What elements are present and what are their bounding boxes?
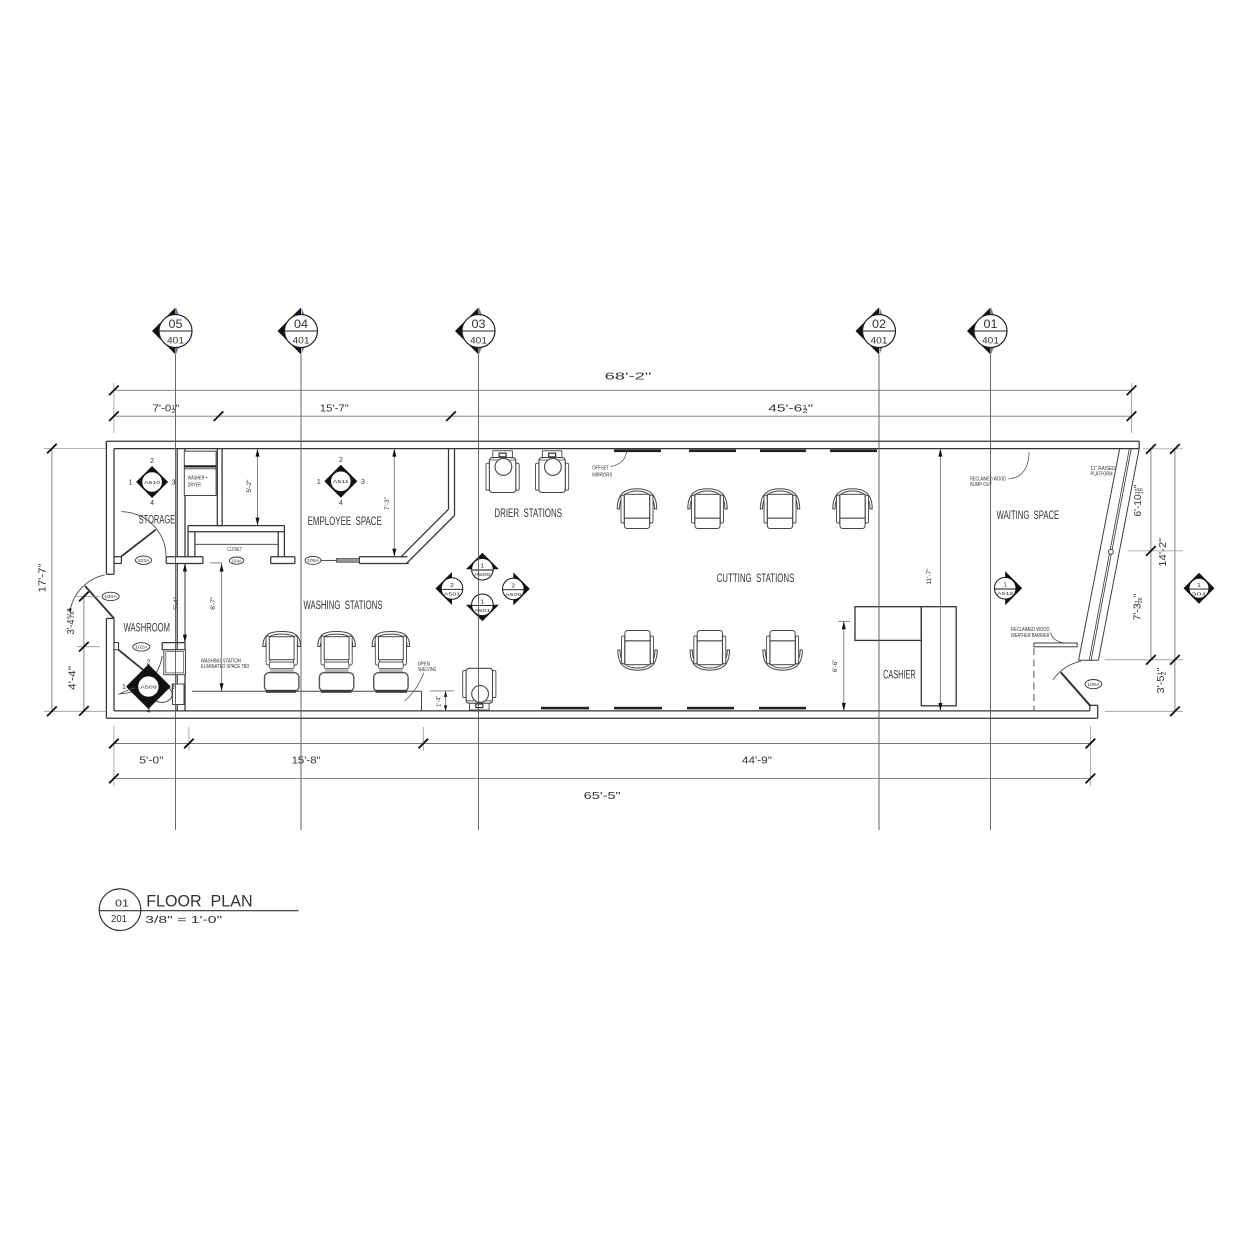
svg-text:109A: 109A [307,558,320,563]
svg-text:14'-2": 14'-2" [1158,537,1169,567]
svg-text:A511: A511 [333,479,349,485]
svg-text:1: 1 [317,479,321,486]
svg-text:3/8" = 1'-0": 3/8" = 1'-0" [145,914,222,926]
svg-text:5'-2": 5'-2" [246,479,253,493]
svg-text:02: 02 [872,317,886,331]
svg-text:7'-3116": 7'-3116" [1133,593,1145,620]
svg-text:A501: A501 [474,608,491,613]
svg-text:3: 3 [171,684,175,691]
svg-text:5'-4": 5'-4" [173,596,180,610]
svg-text:15'-7": 15'-7" [320,402,349,414]
svg-text:3'-512": 3'-512" [1156,667,1168,693]
svg-text:03: 03 [472,317,486,331]
svg-text:4'-4": 4'-4" [68,665,79,690]
svg-text:3: 3 [172,480,176,487]
svg-text:106A: 106A [1087,682,1101,687]
svg-text:65'-5": 65'-5" [584,790,621,802]
svg-text:A500: A500 [474,572,491,577]
svg-text:A510: A510 [144,480,160,486]
svg-text:DRYER: DRYER [188,483,201,489]
svg-text:FLOOR PLAN: FLOOR PLAN [146,892,252,910]
svg-text:6'-101516": 6'-101516" [1133,484,1145,516]
svg-text:2: 2 [450,583,454,589]
svg-text:4: 4 [146,708,150,715]
svg-text:05: 05 [169,317,183,331]
svg-text:WEATHER BARRIER: WEATHER BARRIER [1011,633,1050,639]
svg-text:8'-7": 8'-7" [210,596,217,610]
svg-text:2: 2 [339,457,343,464]
svg-text:301: 301 [1192,591,1208,596]
svg-text:A500: A500 [505,592,522,597]
svg-text:WAITING SPACE: WAITING SPACE [997,510,1060,522]
svg-text:45'-612": 45'-612" [768,402,813,415]
svg-text:1: 1 [122,684,126,691]
svg-text:2: 2 [146,660,150,667]
svg-text:CLOSET: CLOSET [227,547,242,553]
svg-text:7'-012": 7'-012" [153,402,180,415]
svg-text:201: 201 [111,914,127,925]
svg-text:401: 401 [871,336,888,347]
svg-text:4: 4 [150,500,154,507]
svg-text:5'-0": 5'-0" [139,755,164,767]
svg-text:STORAGE: STORAGE [139,514,176,526]
svg-text:1: 1 [1197,583,1201,589]
svg-text:104A: 104A [231,558,243,563]
svg-text:A509: A509 [140,684,157,690]
svg-text:WASHING STATIONS: WASHING STATIONS [303,600,382,612]
svg-text:1: 1 [1003,583,1007,589]
svg-text:1: 1 [480,564,484,570]
svg-text:01: 01 [115,898,130,909]
svg-text:401: 401 [470,336,487,347]
svg-text:100A: 100A [104,594,118,599]
svg-text:102A: 102A [135,645,149,650]
svg-text:MIRRORS: MIRRORS [592,472,612,478]
svg-text:3: 3 [361,479,365,486]
svg-text:2: 2 [511,583,515,589]
svg-text:EMPLOYEE SPACE: EMPLOYEE SPACE [308,516,382,528]
svg-text:ELIMINATED SPACE TBD: ELIMINATED SPACE TBD [201,664,250,670]
svg-text:A512: A512 [997,591,1014,596]
svg-text:PLATFORM: PLATFORM [1091,471,1113,477]
svg-text:6'-6": 6'-6" [832,659,839,673]
svg-text:401: 401 [167,336,184,347]
svg-text:CUTTING STATIONS: CUTTING STATIONS [717,573,795,585]
svg-text:401: 401 [982,336,999,347]
svg-text:4: 4 [339,500,343,507]
svg-text:401: 401 [293,336,310,347]
svg-text:CASHIER: CASHIER [883,670,916,682]
svg-text:68'-2": 68'-2" [605,371,652,383]
svg-text:1: 1 [129,480,133,487]
svg-text:01: 01 [984,317,998,331]
svg-text:44'-9": 44'-9" [742,755,772,767]
svg-text:1: 1 [480,599,484,605]
svg-text:DRIER STATIONS: DRIER STATIONS [494,508,562,520]
svg-text:103A: 103A [138,558,151,563]
svg-text:7'-3": 7'-3" [384,496,391,510]
svg-text:15'-8": 15'-8" [292,755,321,767]
svg-text:3'-4⅝": 3'-4⅝" [66,608,77,634]
svg-text:BUMP-OUT: BUMP-OUT [970,482,993,488]
svg-text:WASHER +: WASHER + [188,476,208,482]
svg-text:2: 2 [150,458,154,465]
svg-text:SHELVING: SHELVING [418,667,437,673]
svg-text:OFFSET: OFFSET [592,466,610,472]
svg-text:1'-4": 1'-4" [436,696,442,707]
svg-text:04: 04 [294,317,308,331]
svg-text:WASHROOM: WASHROOM [124,622,170,634]
svg-text:A501: A501 [444,592,461,597]
svg-text:11'-7": 11'-7" [926,568,933,585]
svg-text:17'-7": 17'-7" [37,563,48,593]
